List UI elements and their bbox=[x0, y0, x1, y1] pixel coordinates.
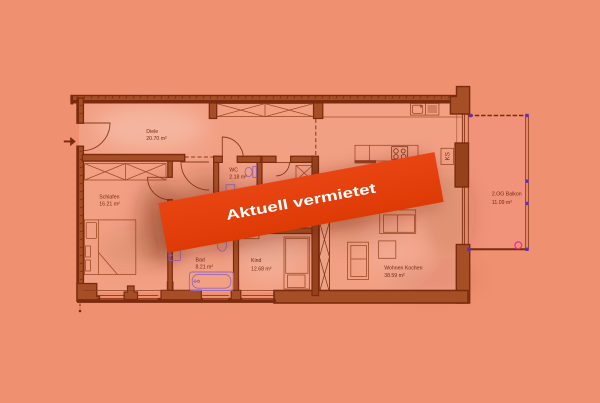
svg-text:Schlafen: Schlafen bbox=[99, 194, 119, 200]
svg-text:2.18 m²: 2.18 m² bbox=[229, 174, 247, 180]
svg-text:12.68 m²: 12.68 m² bbox=[251, 266, 272, 272]
svg-text:20.70 m²: 20.70 m² bbox=[146, 136, 167, 142]
svg-text:KS: KS bbox=[445, 152, 452, 160]
svg-text:16.21 m²: 16.21 m² bbox=[99, 202, 120, 208]
svg-text:Wohnen Kochen: Wohnen Kochen bbox=[384, 265, 422, 271]
svg-text:Bad: Bad bbox=[196, 257, 205, 263]
svg-text:11.09 m²: 11.09 m² bbox=[492, 200, 512, 206]
svg-text:WC: WC bbox=[229, 167, 238, 173]
svg-text:Diele: Diele bbox=[146, 129, 158, 135]
svg-text:2.OG Balkon: 2.OG Balkon bbox=[492, 191, 522, 197]
svg-text:8.21 m²: 8.21 m² bbox=[196, 264, 214, 270]
svg-text:38.59 m²: 38.59 m² bbox=[384, 273, 405, 279]
svg-text:Kind: Kind bbox=[251, 258, 261, 264]
